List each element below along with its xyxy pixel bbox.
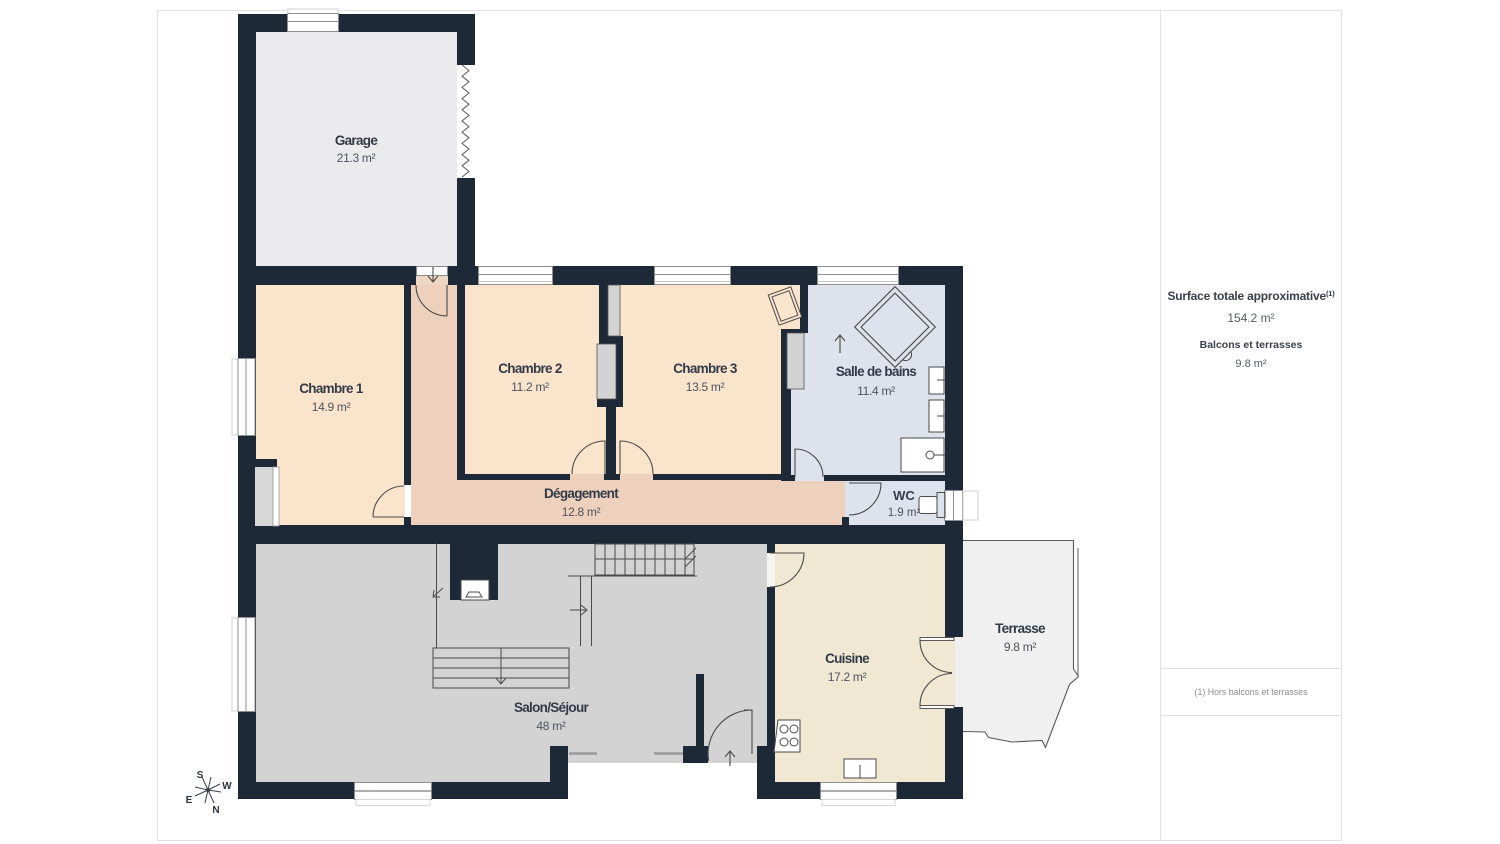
svg-text:N: N	[212, 805, 219, 816]
svg-text:E: E	[186, 795, 193, 806]
svg-text:Salle de bains: Salle de bains	[836, 364, 916, 379]
svg-text:W: W	[222, 781, 232, 792]
svg-text:Salon/Séjour: Salon/Séjour	[514, 700, 590, 715]
svg-text:Surface totale approximative(1: Surface totale approximative(1)	[1167, 289, 1335, 303]
svg-text:48 m²: 48 m²	[536, 719, 565, 733]
svg-text:(1) Hors balcons et terrasses: (1) Hors balcons et terrasses	[1195, 687, 1309, 697]
svg-text:14.9 m²: 14.9 m²	[312, 400, 351, 414]
svg-text:Terrasse: Terrasse	[995, 621, 1046, 636]
svg-text:11.4 m²: 11.4 m²	[857, 384, 895, 398]
svg-text:9.8 m²: 9.8 m²	[1235, 358, 1267, 370]
svg-text:13.5 m²: 13.5 m²	[686, 380, 725, 394]
svg-text:1.9 m²: 1.9 m²	[888, 507, 921, 519]
svg-text:12.8 m²: 12.8 m²	[562, 505, 601, 519]
svg-text:Cuisine: Cuisine	[825, 651, 870, 666]
svg-text:17.2 m²: 17.2 m²	[828, 670, 867, 684]
svg-text:Balcons et terrasses: Balcons et terrasses	[1200, 339, 1303, 351]
svg-text:Dégagement: Dégagement	[544, 486, 619, 501]
svg-text:S: S	[197, 770, 204, 781]
svg-text:Garage: Garage	[335, 133, 379, 148]
svg-text:154.2 m²: 154.2 m²	[1227, 311, 1274, 325]
svg-text:9.8 m²: 9.8 m²	[1004, 640, 1037, 654]
svg-text:WC: WC	[893, 488, 915, 503]
svg-text:Chambre 3: Chambre 3	[673, 361, 738, 376]
svg-text:Chambre 1: Chambre 1	[299, 381, 364, 396]
svg-text:Chambre 2: Chambre 2	[498, 361, 562, 376]
svg-text:11.2 m²: 11.2 m²	[511, 380, 549, 394]
svg-text:21.3 m²: 21.3 m²	[337, 151, 376, 165]
